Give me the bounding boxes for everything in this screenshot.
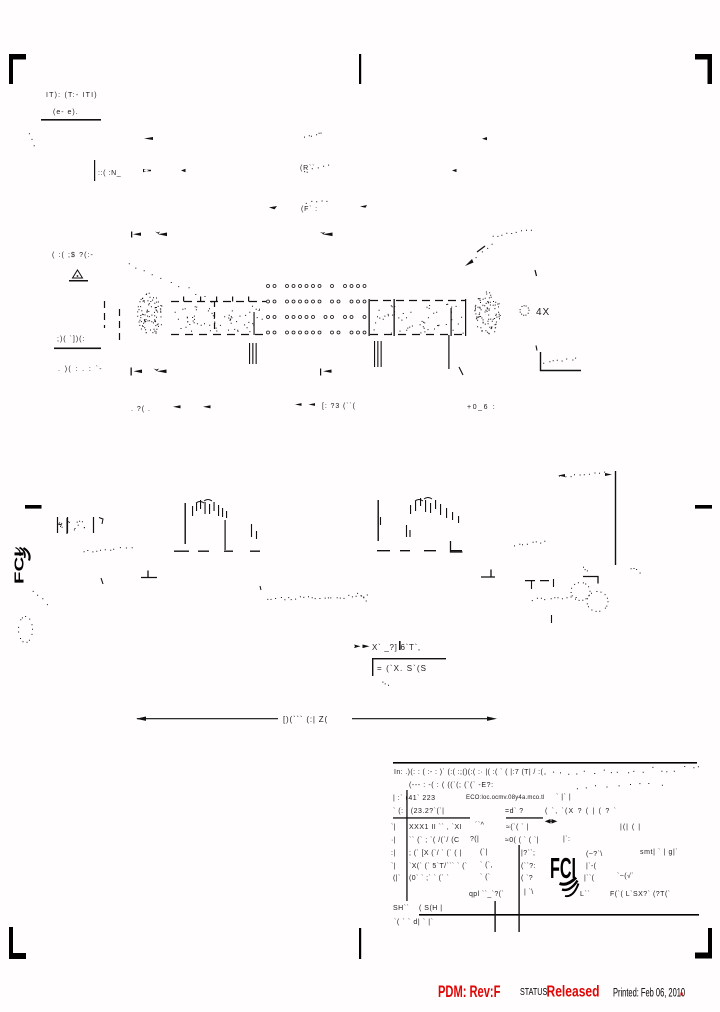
svg-text:|?``;: |?``;: [521, 850, 535, 857]
svg-text:`( ` ` d| ` |`: `( ` ` d| ` |`: [394, 919, 434, 926]
svg-text:ECO:loc.ocmv.08y4a.mco.tl: ECO:loc.ocmv.08y4a.mco.tl: [466, 795, 545, 801]
svg-text:`|: `|: [391, 824, 396, 831]
svg-text:?(|: ?(|: [470, 836, 479, 843]
svg-text:` (: | (23.2?`(`|: ` (: | (23.2?`(`|: [393, 808, 444, 815]
svg-text:`|: `|: [391, 863, 396, 870]
svg-text:(e- e).: (e- e).: [53, 109, 79, 116]
svg-text:smt| ` | g|`: smt| ` | g|`: [640, 849, 678, 856]
svg-text:(|`: (|`: [393, 875, 401, 882]
svg-text:X` _?] 6`T`,: X` _?] 6`T`,: [372, 643, 421, 652]
svg-text:( S(H |: ( S(H |: [419, 905, 443, 912]
svg-text:::( :N_: ::( :N_: [98, 170, 121, 177]
svg-text:[)(``` (:| Z(: [)(``` (:| Z(: [283, 715, 328, 724]
svg-text:` |` |: ` |` |: [556, 794, 571, 801]
svg-text:|``(: |``(: [584, 875, 595, 882]
svg-text:. ?( .: . ?( .: [131, 406, 151, 413]
svg-text:`X(` (` 5`T/``` ` (`: `X(` (` 5`T/``` ` (`: [409, 863, 468, 870]
svg-text:F(`( L`SX?` (?T(`: F(`( L`SX?` (?T(`: [610, 891, 671, 898]
svg-text:| `\: | `\: [524, 889, 534, 896]
svg-text:(--- : -( : ( ((`(; (: (--- : -( : ( ((`(; (`(` -E?:: [409, 782, 494, 789]
svg-text:´`^: ´`^: [475, 822, 485, 829]
svg-text:Released: Released: [547, 983, 600, 1001]
svg-text::|: :|: [391, 850, 396, 857]
svg-text:` (`,: ` (`,: [480, 862, 493, 869]
svg-text:`` (` ; `( /(`/ (C: `` (` ; `( /(`/ (C: [409, 837, 460, 844]
svg-text:( `, `(X ? ( | ( ? `: ( `, `(X ? ( | ( ? `: [545, 808, 617, 815]
svg-text:STATUS:: STATUS:: [520, 986, 549, 997]
svg-text:+0_6 :: +0_6 :: [467, 404, 496, 411]
svg-text:SH``: SH``: [393, 905, 409, 912]
svg-text:( :( ;$ ?(:-: ( :( ;$ ?(:-: [52, 252, 94, 259]
svg-text:|`:: |`:: [563, 836, 570, 843]
svg-text:XXX1 II `` , `XI: XXX1 II `` , `XI: [409, 824, 462, 831]
svg-text:qpl ``_`?(`: qpl ``_`?(`: [469, 891, 504, 898]
svg-text:4X: 4X: [536, 307, 550, 318]
svg-text:; (` [X (`/ ` (` ( |: ; (` [X (`/ ` (` ( |: [409, 850, 462, 857]
svg-text:≈0( ( ` ( `|: ≈0( ( ` ( `|: [505, 837, 539, 844]
svg-text:·|: ·|: [391, 837, 396, 844]
svg-text:Printed: Feb 06, 2010: Printed: Feb 06, 2010: [613, 987, 685, 1000]
svg-text:|`-(: |`-(: [586, 863, 597, 870]
svg-text:|(| ( |: |(| ( |: [620, 824, 641, 831]
svg-text:In: .)(: : ( :- : )` (: In: .)(: : ( :- : )` (:( :;()(:( :· |( :…: [394, 769, 543, 776]
svg-text:PDM: Rev:F: PDM: Rev:F: [438, 982, 501, 1001]
svg-text:. )( : . : `-: . )( : . : `-: [58, 366, 103, 373]
svg-text:| :` (41` 223: | :` (41` 223: [393, 795, 436, 802]
svg-text:IT): (T:- ITI): IT): (T:- ITI): [46, 92, 98, 99]
svg-text:(0` ` ;` ` (` `: (0` ` ;` ` (` `: [409, 875, 449, 882]
svg-text:(~?`\: (~?`\: [586, 851, 603, 858]
svg-text:(`|: (`|: [480, 849, 488, 856]
svg-text:` (`: ` (`: [480, 874, 491, 881]
svg-text:[: ?3 (``(: [: ?3 (``(: [322, 403, 356, 410]
svg-text:(F` :: (F` :: [301, 206, 318, 213]
svg-text:`~(√`: `~(√`: [617, 872, 634, 880]
svg-text:≈(`( ` |: ≈(`( ` |: [506, 824, 529, 831]
svg-text:( `?: ( `?: [521, 875, 533, 882]
svg-text:L``: L``: [580, 891, 590, 898]
svg-text:= (`X. S`(S: = (`X. S`(S: [377, 664, 427, 673]
svg-text:;)( `])(:: ;)( `])(:: [57, 336, 85, 343]
svg-text:=d` ?: =d` ?: [505, 808, 524, 815]
svg-text:(``?:: (``?:: [521, 863, 536, 870]
svg-text:(R``: (R``: [300, 165, 315, 172]
